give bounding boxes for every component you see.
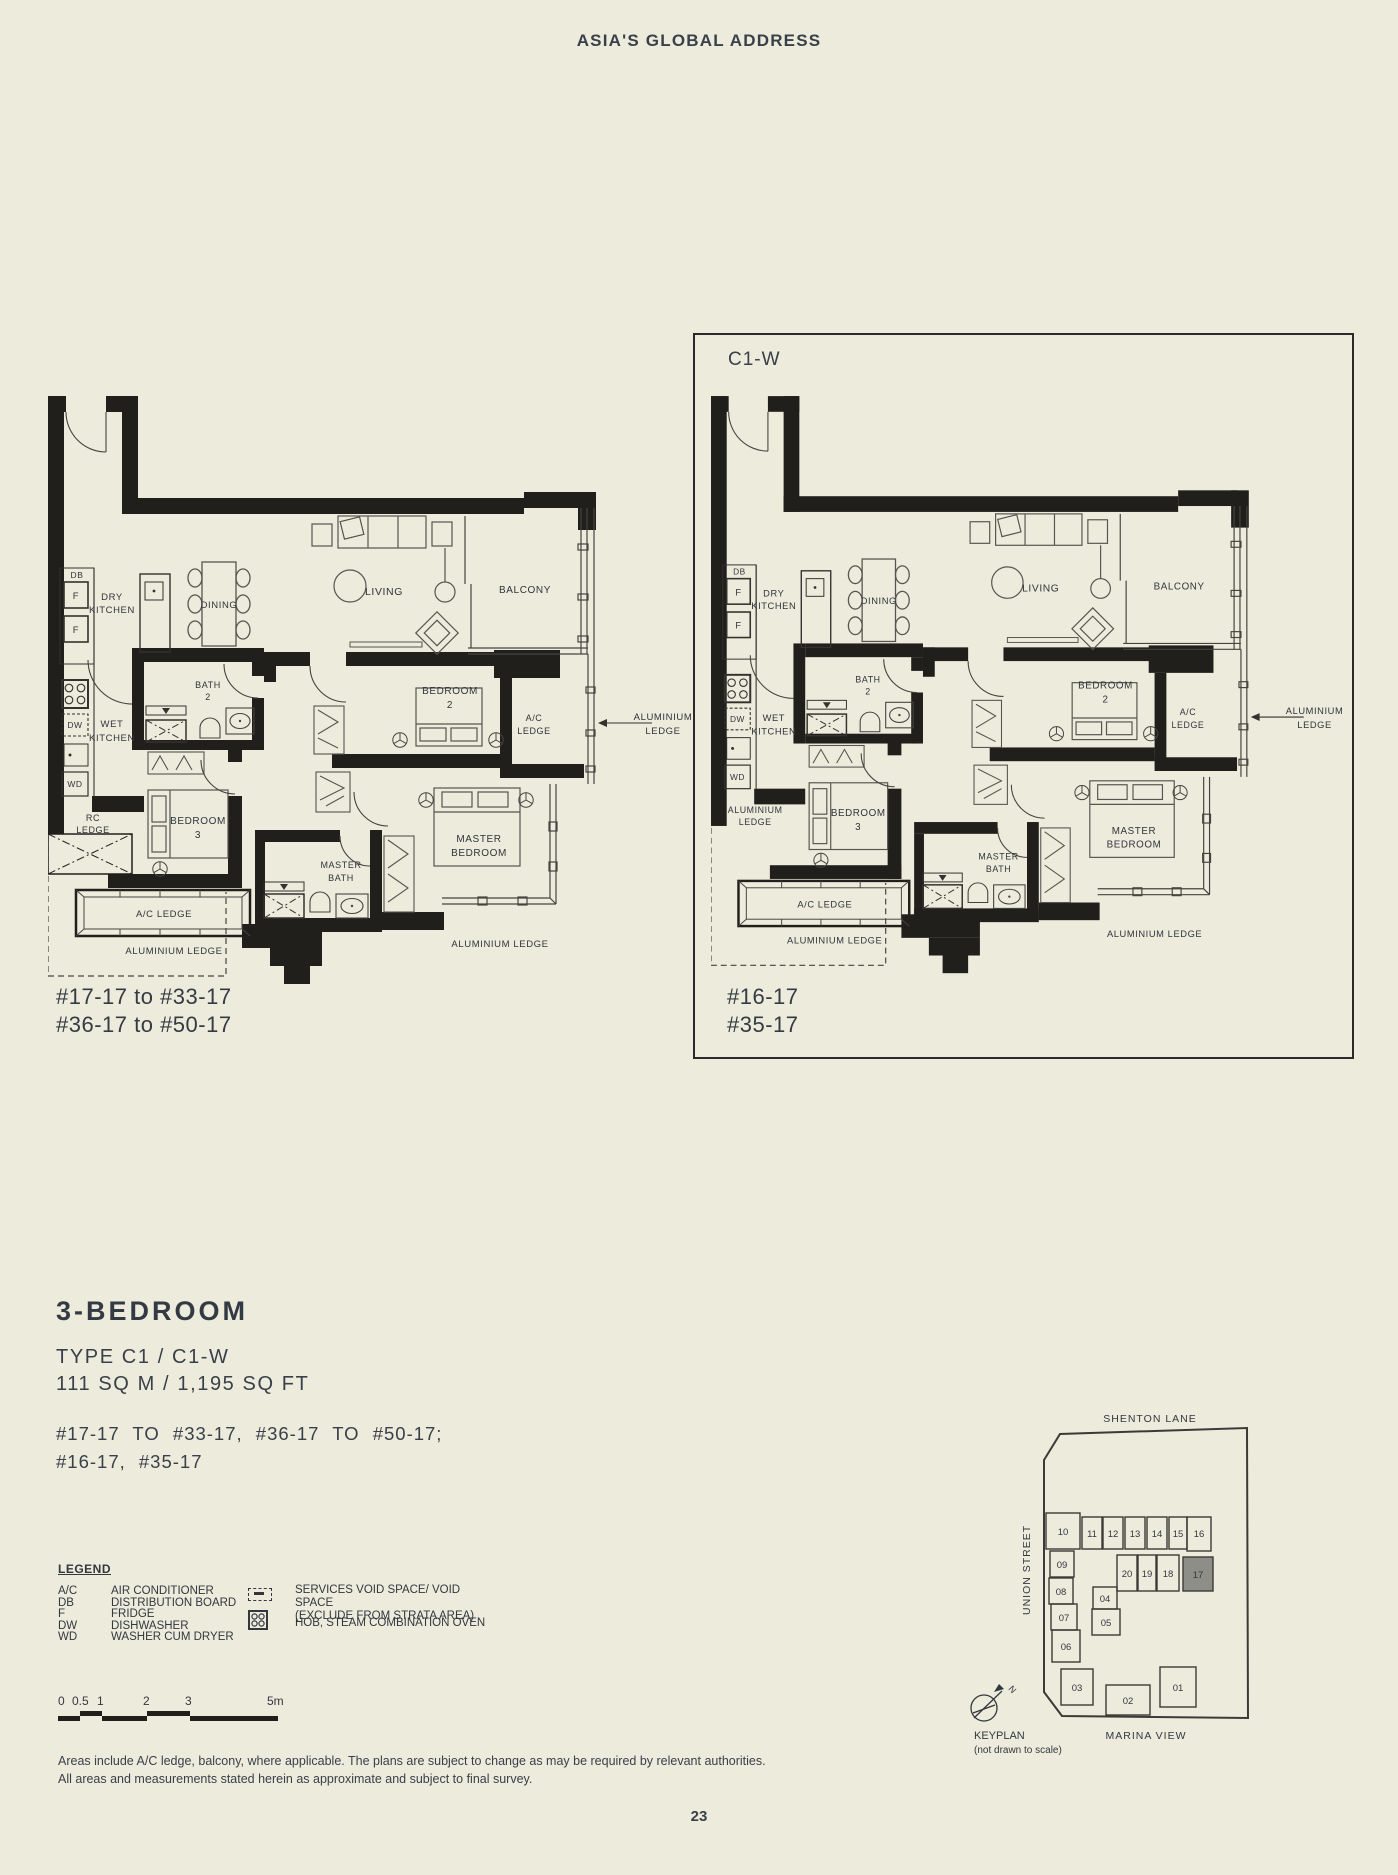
unit-type-subtitle: TYPE C1 / C1-W 111 SQ M / 1,195 SQ FT: [56, 1344, 309, 1398]
keyplan: SHENTON LANE UNION STREET 10: [950, 1405, 1262, 1765]
svg-text:12: 12: [1108, 1529, 1119, 1540]
svg-text:13: 13: [1130, 1529, 1141, 1540]
unit-type-title: 3-BEDROOM: [56, 1296, 248, 1327]
svg-text:2: 2: [143, 1694, 150, 1708]
room-label-mid-ledge: RC: [86, 813, 100, 823]
floorplan-c1w-box: C1-W DB F F DW WD DRY KITCHEN DINING LIV…: [693, 333, 1354, 1059]
page-header: ASIA'S GLOBAL ADDRESS: [0, 31, 1398, 51]
label-ac-ledge-bottom: A/C LEDGE: [136, 909, 192, 920]
room-label-balcony: BALCONY: [1154, 581, 1205, 592]
room-label-db: DB: [70, 570, 83, 580]
svg-text:LEDGE: LEDGE: [645, 726, 680, 737]
svg-text:KITCHEN: KITCHEN: [89, 733, 135, 744]
north-compass-icon: [971, 1684, 1004, 1721]
svg-text:0.5: 0.5: [72, 1694, 89, 1708]
room-label-living: LIVING: [365, 586, 403, 598]
svg-text:1: 1: [97, 1694, 104, 1708]
svg-text:10: 10: [1058, 1527, 1069, 1538]
room-label-dw: DW: [67, 720, 82, 730]
label-alum-ledge-arrow: ALUMINIUM: [1286, 706, 1344, 716]
room-label-db: DB: [733, 567, 746, 577]
room-label-fridge-2: F: [73, 625, 79, 636]
room-label-bedroom2: BEDROOM: [422, 686, 478, 697]
svg-text:LEDGE: LEDGE: [739, 817, 772, 827]
keyplan-title: KEYPLAN: [974, 1730, 1025, 1742]
room-label-master-bath: MASTER: [320, 860, 361, 870]
room-label-bedroom2: BEDROOM: [1078, 681, 1133, 692]
hob-label: HOB, STEAM COMBINATION OVEN: [295, 1617, 485, 1629]
svg-text:09: 09: [1057, 1560, 1068, 1571]
c1w-title: C1-W: [728, 349, 781, 371]
room-label-dining: DINING: [201, 600, 238, 611]
svg-text:05: 05: [1101, 1618, 1112, 1629]
services-void-icon: [248, 1588, 272, 1601]
label-ac-ledge-bottom: A/C LEDGE: [797, 899, 852, 909]
legend: LEGEND A/CAIR CONDITIONER DBDISTRIBUTION…: [58, 1562, 498, 1644]
svg-text:BEDROOM: BEDROOM: [451, 848, 507, 859]
type-line: TYPE C1 / C1-W: [56, 1344, 309, 1371]
area-line: 111 SQ M / 1,195 SQ FT: [56, 1371, 309, 1398]
room-label-fridge-1: F: [735, 587, 741, 597]
svg-text:03: 03: [1072, 1683, 1083, 1694]
room-label-wet-kitchen: WET: [101, 719, 124, 730]
svg-text:LEDGE: LEDGE: [76, 825, 110, 835]
svg-text:07: 07: [1059, 1613, 1070, 1624]
room-label-ac-ledge-right: A/C: [526, 713, 543, 723]
legend-title: LEGEND: [58, 1562, 498, 1576]
room-label-bedroom3: BEDROOM: [170, 816, 226, 827]
svg-text:06: 06: [1061, 1642, 1072, 1653]
svg-text:KITCHEN: KITCHEN: [751, 601, 796, 611]
floor-listing: #17-17 TO #33-17, #36-17 TO #50-17; #16-…: [56, 1420, 442, 1476]
room-label-master-bedroom: MASTER: [1112, 826, 1156, 837]
room-label-master-bath: MASTER: [978, 851, 1018, 861]
room-label-ac-ledge-right: A/C: [1180, 707, 1197, 717]
svg-text:BEDROOM: BEDROOM: [1107, 840, 1162, 851]
label-alum-ledge-bottom-left: ALUMINIUM LEDGE: [125, 946, 222, 957]
svg-text:BATH: BATH: [986, 864, 1011, 874]
room-label-bedroom3: BEDROOM: [831, 808, 886, 819]
room-label-fridge-1: F: [73, 591, 79, 602]
svg-text:3: 3: [185, 1694, 192, 1708]
svg-text:BATH: BATH: [328, 873, 354, 883]
room-label-wet-kitchen: WET: [763, 713, 785, 723]
svg-text:11: 11: [1087, 1529, 1097, 1540]
room-label-mid-ledge: ALUMINIUM: [728, 805, 783, 815]
brochure-page: ASIA'S GLOBAL ADDRESS: [0, 0, 1398, 1875]
svg-text:08: 08: [1056, 1587, 1067, 1598]
room-label-dining: DINING: [861, 596, 897, 606]
room-label-bath2: BATH: [855, 675, 880, 685]
svg-text:5m: 5m: [267, 1694, 284, 1708]
keyplan-subtitle: (not drawn to scale): [974, 1745, 1062, 1756]
svg-text:2: 2: [1102, 694, 1108, 705]
room-label-dw: DW: [730, 714, 745, 724]
room-label-dry-kitchen: DRY: [763, 588, 784, 598]
room-label-wd: WD: [67, 779, 82, 789]
svg-text:3: 3: [195, 830, 201, 841]
label-alum-ledge-arrow: ALUMINIUM: [634, 712, 693, 723]
scale-bar: 0 0.5 1 2 3 5m: [52, 1692, 292, 1732]
svg-text:04: 04: [1100, 1594, 1111, 1605]
svg-text:16: 16: [1194, 1529, 1205, 1540]
disclaimer: Areas include A/C ledge, balcony, where …: [58, 1752, 766, 1788]
svg-text:02: 02: [1123, 1696, 1134, 1707]
floorplan-c1-drawing: DB F F DW WD DRY KITCHEN DINING LIVING B…: [48, 392, 693, 1057]
street-label-top: SHENTON LANE: [1103, 1413, 1197, 1425]
north-label: N: [1007, 1684, 1019, 1696]
c1-unit-range: #17-17 to #33-17 #36-17 to #50-17: [56, 983, 232, 1039]
floorplan-c1w-drawing: DB F F DW WD DRY KITCHEN DINING LIVING B…: [711, 392, 1344, 1045]
label-alum-ledge-bottom-right: ALUMINIUM LEDGE: [451, 939, 548, 950]
label-alum-ledge-bottom-right: ALUMINIUM LEDGE: [1107, 929, 1202, 939]
svg-text:LEDGE: LEDGE: [1297, 720, 1332, 730]
svg-text:18: 18: [1163, 1569, 1174, 1580]
room-label-wd: WD: [730, 772, 745, 782]
room-label-bath2: BATH: [195, 680, 221, 690]
svg-text:2: 2: [865, 686, 871, 696]
svg-text:01: 01: [1173, 1683, 1184, 1694]
label-alum-ledge-bottom-left: ALUMINIUM LEDGE: [787, 936, 882, 946]
svg-text:2: 2: [205, 692, 211, 702]
svg-text:LEDGE: LEDGE: [517, 726, 551, 736]
svg-text:20: 20: [1122, 1569, 1133, 1580]
hob-icon: [248, 1610, 268, 1630]
room-label-living: LIVING: [1022, 583, 1059, 594]
svg-text:3: 3: [855, 822, 861, 833]
room-label-balcony: BALCONY: [499, 585, 551, 596]
street-label-bottom: MARINA VIEW: [1105, 1730, 1186, 1742]
svg-text:19: 19: [1142, 1569, 1153, 1580]
page-number: 23: [0, 1808, 1398, 1825]
svg-text:KITCHEN: KITCHEN: [751, 727, 796, 737]
room-label-fridge-2: F: [735, 621, 741, 631]
street-label-left: UNION STREET: [1021, 1525, 1033, 1615]
svg-text:2: 2: [447, 700, 453, 711]
floorplan-c1: DB F F DW WD DRY KITCHEN DINING LIVING B…: [48, 392, 693, 1057]
svg-text:15: 15: [1173, 1529, 1184, 1540]
room-label-master-bedroom: MASTER: [456, 834, 501, 845]
svg-text:17: 17: [1193, 1570, 1204, 1581]
svg-text:0: 0: [58, 1694, 65, 1708]
room-label-dry-kitchen: DRY: [101, 592, 123, 603]
c1w-unit-range: #16-17 #35-17: [727, 983, 799, 1039]
svg-text:KITCHEN: KITCHEN: [89, 605, 135, 616]
svg-text:14: 14: [1152, 1529, 1163, 1540]
svg-text:LEDGE: LEDGE: [1172, 720, 1205, 730]
